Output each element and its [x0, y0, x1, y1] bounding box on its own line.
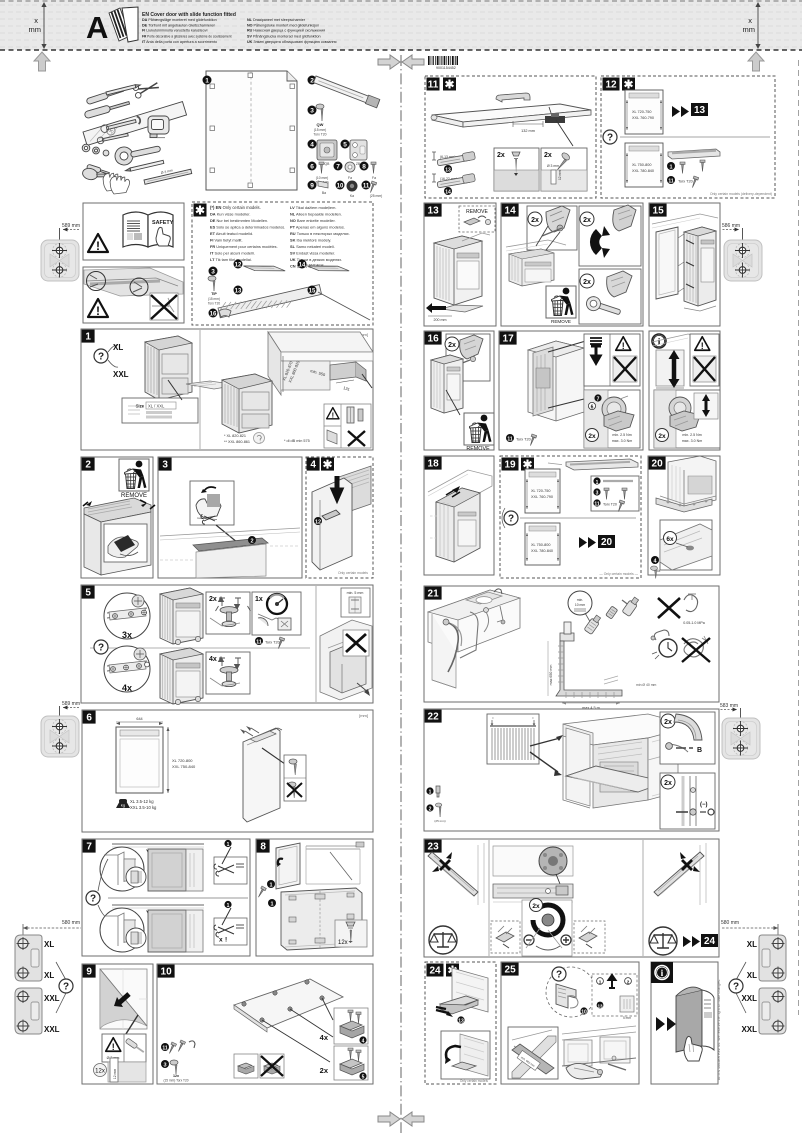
svg-text:min. 2.5 Nm: min. 2.5 Nm — [612, 433, 631, 437]
svg-text:3x: 3x — [122, 630, 132, 640]
svg-text:2: 2 — [250, 539, 253, 545]
svg-text:10: 10 — [161, 967, 173, 978]
svg-text:0.05-1.0 MPa: 0.05-1.0 MPa — [683, 621, 705, 625]
svg-text:11: 11 — [594, 502, 600, 508]
svg-text:XL 720-800: XL 720-800 — [172, 758, 193, 763]
svg-text:12 mm: 12 mm — [113, 1069, 117, 1080]
svg-text:13: 13 — [458, 1019, 464, 1025]
svg-text:6: 6 — [86, 713, 92, 724]
svg-text:DE Nur bei bestimmten Modelle: DE Nur bei bestimmten Modellen. — [210, 218, 268, 223]
svg-text:3: 3 — [163, 1063, 166, 1069]
svg-text:21: 21 — [428, 589, 440, 600]
svg-text:16: 16 — [210, 312, 217, 318]
svg-text:Torx T20: Torx T20 — [678, 180, 693, 184]
svg-text:2x: 2x — [209, 596, 217, 603]
svg-text:Fa: Fa — [372, 176, 376, 180]
svg-text:mm: mm — [743, 25, 756, 34]
svg-text:2x: 2x — [448, 342, 456, 349]
svg-text:6: 6 — [310, 164, 314, 171]
svg-text:2: 2 — [627, 980, 630, 985]
svg-text:6x: 6x — [666, 536, 674, 543]
svg-text:12x: 12x — [338, 940, 348, 946]
svg-text:LV Tikai dažiem modeļiem.: LV Tikai dažiem modeļiem. — [290, 205, 336, 210]
svg-text:QB: QB — [325, 162, 331, 166]
svg-text:1: 1 — [599, 980, 602, 985]
svg-text:XL: XL — [44, 940, 54, 949]
svg-text:24: 24 — [429, 966, 441, 977]
svg-text:4x: 4x — [320, 1033, 329, 1042]
svg-text:11: 11 — [363, 184, 370, 190]
svg-text:!: ! — [225, 937, 227, 944]
svg-text:Only certain models: Only certain models — [338, 571, 368, 575]
svg-text:3: 3 — [211, 269, 215, 276]
svg-text:18: 18 — [428, 459, 440, 470]
svg-text:1: 1 — [429, 790, 432, 796]
svg-text:XXL 760-790: XXL 760-790 — [531, 495, 553, 499]
svg-text:SL Samo nekateri modeli.: SL Samo nekateri modeli. — [290, 244, 335, 249]
svg-text:2: 2 — [429, 807, 432, 813]
svg-text:7: 7 — [336, 164, 340, 171]
svg-text:SV Påhängslucka monterad med g: SV Påhängslucka monterad med glidfunktio… — [247, 34, 321, 38]
svg-text:2x: 2x — [588, 433, 596, 440]
svg-text:3: 3 — [596, 491, 599, 497]
svg-text:RU Только в некоторых моделях: RU Только в некоторых моделях. — [290, 231, 350, 236]
svg-text:132 mm: 132 mm — [521, 129, 535, 133]
svg-text:XL / XXL: XL / XXL — [148, 404, 165, 409]
svg-text:12 mm: 12 mm — [558, 170, 562, 180]
svg-text:3: 3 — [310, 108, 314, 115]
svg-text:2x: 2x — [497, 152, 505, 159]
svg-text:REMOVE: REMOVE — [466, 446, 490, 452]
svg-text:9001154452: 9001154452 — [436, 66, 456, 70]
svg-text:NO Påhengsluke montert med gli: NO Påhengsluke montert med glidefunksjon — [247, 23, 319, 27]
svg-text:NL Draaipaneel met sleepscharn: NL Draaipaneel met sleepscharnier — [247, 18, 306, 22]
svg-text:13: 13 — [235, 289, 242, 295]
svg-text:1: 1 — [227, 842, 230, 848]
svg-text:580 mm: 580 mm — [62, 920, 80, 926]
svg-text:16: 16 — [428, 334, 440, 345]
svg-text:20: 20 — [601, 537, 613, 548]
svg-text:589 mm: 589 mm — [62, 223, 80, 229]
svg-text:Torx T20: Torx T20 — [265, 641, 280, 645]
svg-text:1: 1 — [85, 332, 91, 343]
svg-text:20: 20 — [652, 459, 664, 470]
svg-text:QW: QW — [317, 122, 324, 127]
svg-text:11: 11 — [162, 1046, 168, 1052]
svg-text:Fa: Fa — [348, 176, 352, 180]
svg-text:4x: 4x — [122, 683, 132, 693]
svg-text:XL 750-800: XL 750-800 — [632, 163, 652, 167]
svg-text:9: 9 — [86, 967, 92, 978]
svg-text:min. 2.5 Nm: min. 2.5 Nm — [682, 433, 701, 437]
svg-text:1x: 1x — [255, 596, 263, 603]
svg-text:REMOVE: REMOVE — [466, 209, 488, 215]
svg-text:* XL 820-821: * XL 820-821 — [224, 434, 246, 438]
svg-text:2x: 2x — [532, 903, 540, 910]
svg-text:XXL 750-840: XXL 750-840 — [172, 764, 196, 769]
svg-text:x: x — [34, 16, 38, 25]
svg-text:kg: kg — [121, 803, 125, 808]
svg-text:5: 5 — [343, 142, 347, 149]
svg-text:max 650 mm: max 650 mm — [549, 665, 553, 686]
svg-text:10: 10 — [337, 184, 344, 190]
svg-text:Torx T20: Torx T20 — [603, 503, 617, 507]
svg-text:24: 24 — [704, 936, 716, 947]
svg-text:Ba: Ba — [322, 191, 326, 195]
svg-text:FR Porte décorative à glissièr: FR Porte décorative à glissières avec sy… — [142, 34, 232, 38]
svg-text:1: 1 — [205, 78, 209, 85]
svg-text:(25 mm): (25 mm) — [434, 819, 445, 823]
svg-text:=: = — [532, 716, 534, 720]
svg-text:XXL: XXL — [113, 370, 129, 379]
svg-text:4x: 4x — [209, 656, 217, 663]
svg-text:6x: 6x — [657, 569, 661, 573]
svg-text:XL 750-800: XL 750-800 — [531, 543, 551, 547]
svg-text:FR Uniquement pour certains mo: FR Uniquement pour certains modèles. — [210, 244, 278, 249]
svg-text:XL 720-750: XL 720-750 — [531, 489, 551, 493]
svg-text:i: i — [661, 969, 664, 979]
svg-text:(−): (−) — [700, 802, 708, 808]
svg-text:max. 3.0 Nm: max. 3.0 Nm — [612, 439, 632, 443]
svg-text:Only certain models: Only certain models — [460, 1079, 489, 1083]
svg-text:XL: XL — [113, 343, 123, 352]
svg-text:(15 mm): (15 mm) — [208, 297, 220, 301]
svg-text:XXL: XXL — [44, 1025, 60, 1034]
svg-text:13: 13 — [694, 105, 706, 116]
svg-text:NO Bare enkelte modeller.: NO Bare enkelte modeller. — [290, 218, 336, 223]
svg-text:[mm]: [mm] — [359, 713, 368, 718]
svg-text:XL: XL — [44, 971, 54, 980]
svg-text:SK Iba niektoré modely.: SK Iba niektoré modely. — [290, 238, 331, 243]
svg-text:3: 3 — [162, 460, 168, 471]
svg-text:XXL: XXL — [741, 994, 757, 1003]
svg-text:NL Alleen bepaalde modellen.: NL Alleen bepaalde modellen. — [290, 212, 342, 217]
svg-text:589 mm: 589 mm — [62, 701, 80, 707]
svg-text:x: x — [748, 16, 752, 25]
svg-text:=: = — [492, 716, 494, 720]
svg-text:XXL 3.5-10 kg: XXL 3.5-10 kg — [130, 805, 157, 810]
svg-text:580 mm: 580 mm — [721, 920, 739, 926]
svg-text:5: 5 — [362, 1075, 365, 1081]
svg-text:** XXL 860-861: ** XXL 860-861 — [224, 440, 250, 444]
svg-text:5 mm: 5 mm — [623, 1016, 631, 1020]
svg-text:8: 8 — [260, 842, 266, 853]
svg-text:DA Påhængslåge monteret med gl: DA Påhængslåge monteret med glidefunktio… — [142, 18, 217, 22]
svg-text:min.: min. — [577, 598, 583, 602]
svg-text:4: 4 — [310, 142, 314, 149]
svg-text:2x: 2x — [544, 152, 552, 159]
svg-text:6: 6 — [591, 405, 594, 411]
svg-text:583 mm: 583 mm — [720, 703, 738, 709]
svg-text:13: 13 — [445, 168, 451, 174]
svg-text:1: 1 — [227, 903, 230, 909]
svg-text:23: 23 — [428, 842, 440, 853]
svg-text:14: 14 — [445, 190, 451, 196]
svg-text:max. 3.0 Nm: max. 3.0 Nm — [682, 439, 702, 443]
svg-text:12x: 12x — [95, 1069, 105, 1075]
svg-text:UK Тільки в деяких моделях.: UK Тільки в деяких моделях. — [290, 257, 342, 262]
svg-text:12: 12 — [235, 263, 242, 269]
svg-text:DE Türfront mit angebauten Gle: DE Türfront mit angebauten Gleitscharnie… — [142, 23, 215, 27]
svg-text:9: 9 — [310, 183, 314, 190]
svg-text:2x: 2x — [658, 433, 666, 440]
svg-text:TIP: TIP — [211, 292, 217, 296]
svg-text:* di dB min 575: * di dB min 575 — [284, 439, 310, 443]
svg-text:5: 5 — [85, 588, 91, 599]
svg-text:2x: 2x — [664, 780, 672, 787]
svg-text:1: 1 — [596, 480, 599, 486]
svg-text:Ø 3 mm: Ø 3 mm — [547, 164, 559, 168]
svg-text:2x: 2x — [583, 217, 591, 224]
svg-text:644: 644 — [136, 717, 142, 721]
svg-text:min. 5 mm: min. 5 mm — [347, 591, 364, 595]
svg-text:13: 13 — [428, 206, 440, 217]
svg-text:19: 19 — [504, 460, 516, 471]
svg-text:XXL: XXL — [44, 994, 60, 1003]
svg-text:XXL: XXL — [741, 1025, 757, 1034]
svg-text:PT Apenas em alguns modelos.: PT Apenas em alguns modelos. — [290, 225, 345, 230]
svg-text:Only certain models (delivery-: Only certain models (delivery-dependent) — [710, 192, 772, 196]
svg-text:XXL 760-790: XXL 760-790 — [632, 116, 654, 120]
svg-text:2x: 2x — [320, 1066, 329, 1075]
svg-text:Torx T20: Torx T20 — [516, 438, 531, 442]
svg-text:1: 1 — [669, 165, 672, 171]
svg-text:XL: XL — [747, 971, 757, 980]
svg-text:15: 15 — [653, 206, 665, 217]
svg-text:25: 25 — [505, 965, 517, 976]
svg-text:2x: 2x — [583, 279, 591, 286]
svg-text:(15 mm) Torx T20: (15 mm) Torx T20 — [163, 1079, 188, 1083]
svg-text:RU Навесная дверца с функцией: RU Навесная дверца с функцией скольжения — [247, 29, 325, 33]
svg-text:XL 3.5-12 kg: XL 3.5-12 kg — [130, 799, 154, 804]
svg-text:7: 7 — [597, 397, 600, 403]
svg-text:Torx T20: Torx T20 — [313, 133, 326, 137]
svg-text:DA Kun visse modeller.: DA Kun visse modeller. — [210, 212, 250, 217]
svg-text:A: A — [86, 10, 108, 45]
svg-text:2x: 2x — [531, 217, 539, 224]
svg-text:4: 4 — [310, 460, 316, 471]
svg-text:ES Sólo se aplica a determina: ES Sólo se aplica a determinados modelos… — [210, 225, 285, 230]
svg-text:200 mm: 200 mm — [434, 318, 447, 322]
svg-text:(25 mm): (25 mm) — [370, 194, 383, 198]
svg-text:14: 14 — [299, 263, 306, 269]
svg-text:17: 17 — [503, 334, 515, 345]
svg-text:2: 2 — [310, 78, 314, 85]
svg-text:1: 1 — [269, 883, 272, 889]
svg-text:10: 10 — [581, 1010, 587, 1016]
svg-text:14: 14 — [505, 206, 517, 217]
svg-text:586 mm: 586 mm — [722, 223, 740, 229]
svg-text:12: 12 — [315, 520, 321, 526]
svg-text:Torx T20: Torx T20 — [208, 302, 221, 306]
svg-text:(10 mm): (10 mm) — [316, 176, 329, 180]
svg-text:4: 4 — [362, 1039, 365, 1045]
svg-text:UK Знімні дверцята облицьовані: UK Знімні дверцята облицьовані функцією … — [247, 40, 337, 44]
svg-text:(*) EN Only certain models.: (*) EN Only certain models. — [210, 205, 261, 210]
svg-text:REMOVE: REMOVE — [551, 319, 571, 324]
svg-text:22: 22 — [428, 712, 440, 723]
svg-text:13: 13 — [597, 1004, 603, 1009]
svg-text:12x: 12x — [173, 1074, 179, 1078]
svg-text:ET Ainult teatud mudelid.: ET Ainult teatud mudelid. — [210, 231, 253, 236]
svg-text:1: 1 — [270, 902, 273, 908]
svg-text:11: 11 — [428, 80, 439, 91]
svg-text:FI Vain tietyt mallit.: FI Vain tietyt mallit. — [210, 238, 243, 243]
svg-text:IT Solo per alcuni modelli.: IT Solo per alcuni modelli. — [210, 251, 255, 256]
svg-text:x: x — [219, 937, 223, 944]
svg-text:IT Anta della porta con apertu: IT Anta della porta con apertura a scorr… — [142, 40, 217, 44]
svg-text:LT Tik tam tikri modeliai.: LT Tik tam tikri modeliai. — [210, 257, 252, 262]
svg-text:XL 720-750: XL 720-750 — [632, 110, 652, 114]
svg-text:7: 7 — [86, 842, 92, 853]
svg-text:XXL 780-840: XXL 780-840 — [632, 169, 654, 173]
svg-text:11: 11 — [256, 640, 262, 646]
svg-text:min Ø 40 mm: min Ø 40 mm — [636, 683, 657, 687]
svg-text:SV Endast vissa modeller.: SV Endast vissa modeller. — [290, 251, 335, 256]
svg-text:2: 2 — [85, 460, 91, 471]
svg-text:SAFETY: SAFETY — [152, 220, 174, 226]
svg-text:— Only certain models —: — Only certain models — — [599, 572, 638, 576]
svg-text:10 mm: 10 mm — [575, 603, 586, 607]
svg-text:mm: mm — [29, 25, 42, 34]
svg-text:8: 8 — [362, 164, 366, 171]
svg-text:XXL 780-840: XXL 780-840 — [531, 549, 553, 553]
svg-text:FI Liukutoiminnolla varustettu: FI Liukutoiminnolla varustettu kalusteov… — [142, 29, 208, 33]
svg-text:2x: 2x — [664, 719, 672, 726]
svg-text:11: 11 — [668, 179, 674, 185]
svg-text:XL: XL — [747, 940, 757, 949]
svg-text:B: B — [697, 747, 702, 754]
svg-text:12: 12 — [605, 80, 617, 91]
svg-text:15: 15 — [309, 289, 316, 295]
svg-text:(15 mm): (15 mm) — [314, 128, 327, 132]
svg-text:11: 11 — [507, 437, 513, 443]
svg-text:Ka: Ka — [350, 194, 354, 198]
